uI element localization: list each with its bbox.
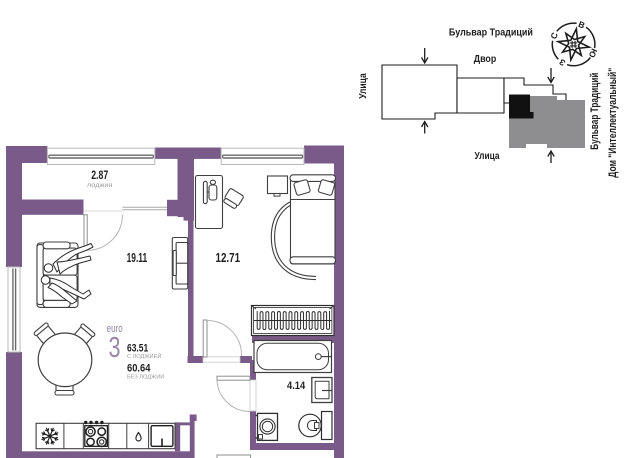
svg-text:3: 3 — [109, 332, 121, 364]
svg-text:лоджия: лоджия — [87, 182, 113, 189]
svg-text:Дом "Интеллектуальный": Дом "Интеллектуальный" — [607, 68, 619, 178]
svg-text:Улица: Улица — [475, 150, 500, 162]
svg-text:С ЛОДЖИЕЙ: С ЛОДЖИЕЙ — [127, 352, 161, 360]
svg-text:Улица: Улица — [357, 73, 369, 99]
svg-text:2.87: 2.87 — [91, 168, 108, 182]
svg-text:12.71: 12.71 — [216, 250, 241, 265]
svg-text:Бульвар Традиций: Бульвар Традиций — [589, 73, 601, 150]
svg-text:Двор: Двор — [474, 53, 497, 65]
svg-text:63.51: 63.51 — [127, 343, 148, 355]
svg-text:БЕЗ ЛОДЖИИ: БЕЗ ЛОДЖИИ — [127, 375, 164, 381]
svg-text:60.64: 60.64 — [127, 362, 151, 374]
svg-text:Бульвар Традиций: Бульвар Традиций — [449, 26, 533, 38]
svg-text:19.11: 19.11 — [127, 250, 148, 265]
svg-text:4.14: 4.14 — [287, 380, 306, 392]
